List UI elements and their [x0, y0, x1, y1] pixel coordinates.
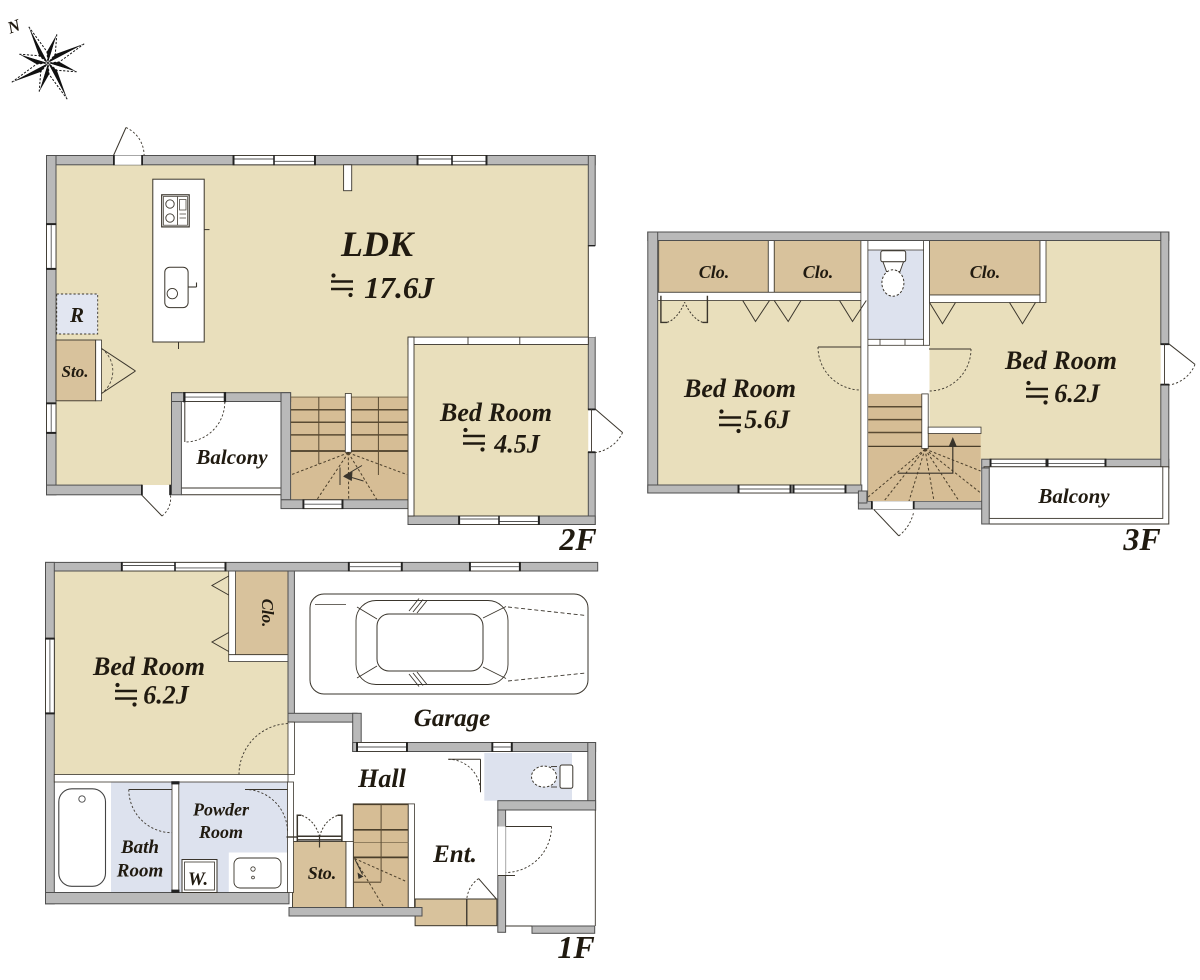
svg-text:Clo.: Clo. [699, 262, 730, 282]
svg-text:Garage: Garage [414, 705, 490, 732]
svg-text:3F: 3F [1122, 521, 1160, 557]
svg-text:Bath: Bath [120, 837, 159, 858]
svg-text:N: N [4, 15, 24, 38]
svg-text:Clo.: Clo. [258, 599, 277, 628]
svg-text:Bed Room: Bed Room [683, 374, 796, 403]
svg-text:R: R [69, 303, 84, 327]
svg-text:Bed Room: Bed Room [92, 652, 205, 681]
svg-text:Clo.: Clo. [970, 262, 1001, 282]
svg-text:Sto.: Sto. [308, 863, 337, 883]
svg-text:4.5J: 4.5J [493, 430, 541, 459]
svg-text:1F: 1F [557, 929, 594, 965]
svg-text:Clo.: Clo. [803, 262, 834, 282]
svg-text:Balcony: Balcony [195, 445, 268, 469]
svg-text:Hall: Hall [357, 764, 406, 793]
svg-text:5.6J: 5.6J [744, 405, 791, 434]
svg-text:Room: Room [198, 822, 243, 842]
svg-text:Sto.: Sto. [62, 362, 89, 381]
svg-text:Bed Room: Bed Room [439, 398, 552, 427]
svg-text:Room: Room [116, 861, 163, 882]
svg-text:6.2J: 6.2J [1054, 379, 1101, 408]
svg-text:6.2J: 6.2J [143, 681, 190, 710]
svg-text:Balcony: Balcony [1037, 484, 1110, 508]
svg-text:Powder: Powder [192, 800, 250, 820]
svg-text:2F: 2F [558, 521, 596, 557]
svg-text:17.6J: 17.6J [364, 270, 435, 305]
svg-text:W.: W. [188, 869, 208, 890]
svg-text:LDK: LDK [340, 224, 416, 264]
svg-text:Ent.: Ent. [432, 841, 477, 868]
svg-text:Bed Room: Bed Room [1004, 346, 1117, 375]
